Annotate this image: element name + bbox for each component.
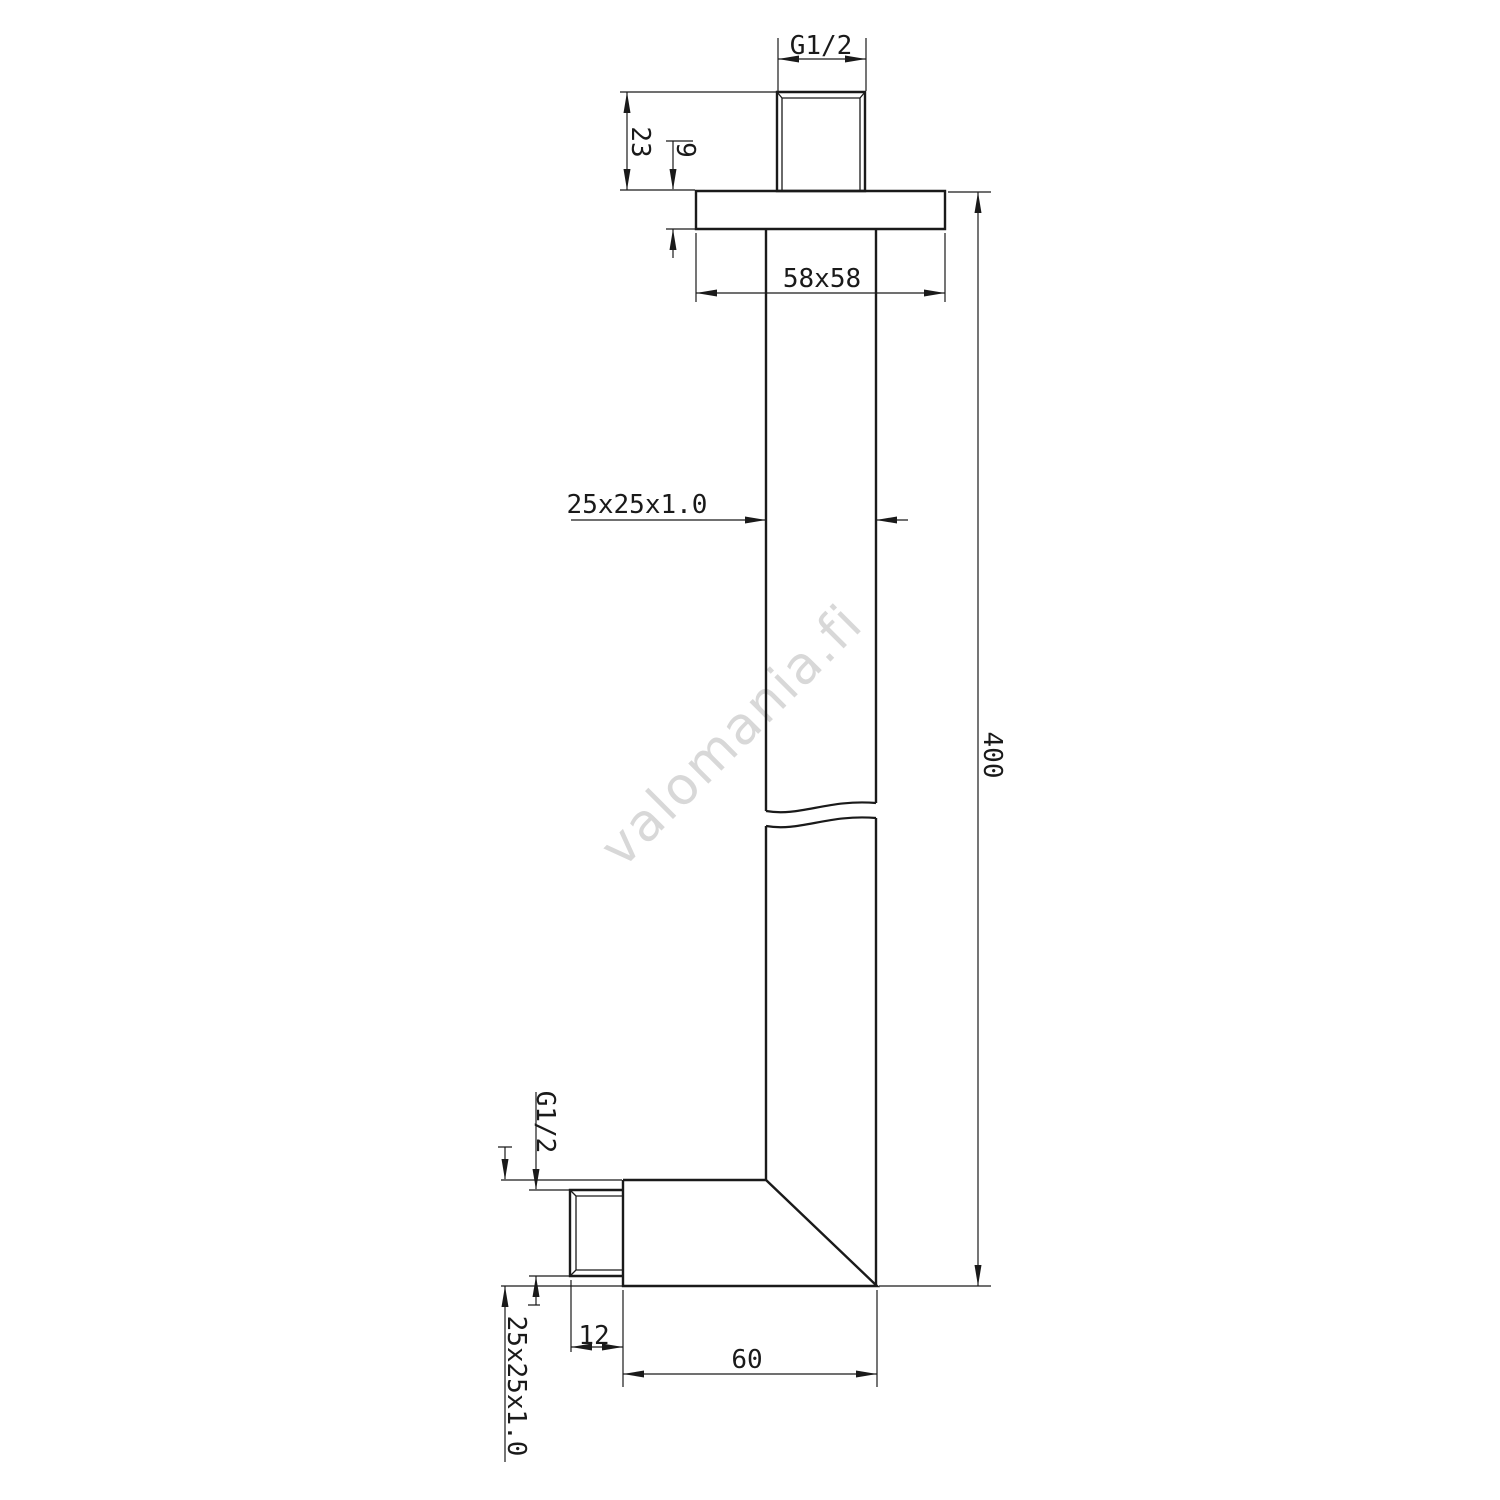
arrowhead <box>502 1286 509 1307</box>
dim-overall-length: 400 <box>879 192 1007 1286</box>
elbow-arm <box>623 1180 877 1286</box>
dim-label-overall-length: 400 <box>977 732 1007 779</box>
arrowhead <box>670 229 677 250</box>
arrowhead <box>624 169 631 190</box>
technical-drawing: valomania.fi G1/2 <box>0 0 1500 1500</box>
bottom-thread-stub <box>570 1190 623 1276</box>
arrowhead <box>975 192 982 213</box>
dim-stub-height: 23 <box>620 92 776 190</box>
drawing-canvas: valomania.fi G1/2 <box>0 0 1500 1500</box>
dim-thread-offset: 12 <box>571 1280 623 1352</box>
flange-plate <box>696 191 945 229</box>
top-thread-stub-thread-lines <box>777 92 865 191</box>
dim-thread-top: G1/2 <box>778 31 866 91</box>
top-thread-stub <box>777 92 865 191</box>
dim-label-arm-profile: 25x25x1.0 <box>501 1316 531 1457</box>
dim-thread-bottom: G1/2 <box>528 1091 575 1305</box>
dim-arm-profile: 25x25x1.0 <box>498 1147 622 1462</box>
arrowhead <box>924 290 945 297</box>
bottom-thread-stub-thread-lines <box>570 1190 623 1276</box>
arrowhead <box>696 290 717 297</box>
dim-overall-length-lines <box>879 192 991 1286</box>
dim-tube-profile: 25x25x1.0 <box>567 490 908 524</box>
dim-flange-thickness-lines <box>666 141 695 258</box>
arrowhead <box>670 169 677 190</box>
dim-arm-length: 60 <box>623 1290 877 1387</box>
dim-label-stub-height: 23 <box>625 126 655 157</box>
dim-label-arm-length: 60 <box>731 1345 762 1375</box>
break-line-upper <box>766 802 876 812</box>
dim-label-flange-plate: 58x58 <box>783 264 861 294</box>
dim-label-flange-thickness: 9 <box>670 142 700 158</box>
dim-label-tube-profile: 25x25x1.0 <box>567 490 708 520</box>
watermark-text: valomania.fi <box>589 593 875 879</box>
dim-label-thread-offset: 12 <box>578 1321 609 1351</box>
arrowhead <box>876 517 897 524</box>
arrowhead <box>856 1371 877 1378</box>
arrowhead <box>502 1159 509 1180</box>
arrowhead <box>624 92 631 113</box>
arrowhead <box>745 517 766 524</box>
dim-flange-plate: 58x58 <box>696 233 945 302</box>
break-line-lower <box>766 817 876 827</box>
tube-lower-segment <box>766 818 876 1286</box>
arrowhead <box>623 1371 644 1378</box>
dim-label-thread-top: G1/2 <box>790 31 853 61</box>
dim-label-thread-bottom: G1/2 <box>530 1091 560 1154</box>
arrowhead <box>975 1265 982 1286</box>
